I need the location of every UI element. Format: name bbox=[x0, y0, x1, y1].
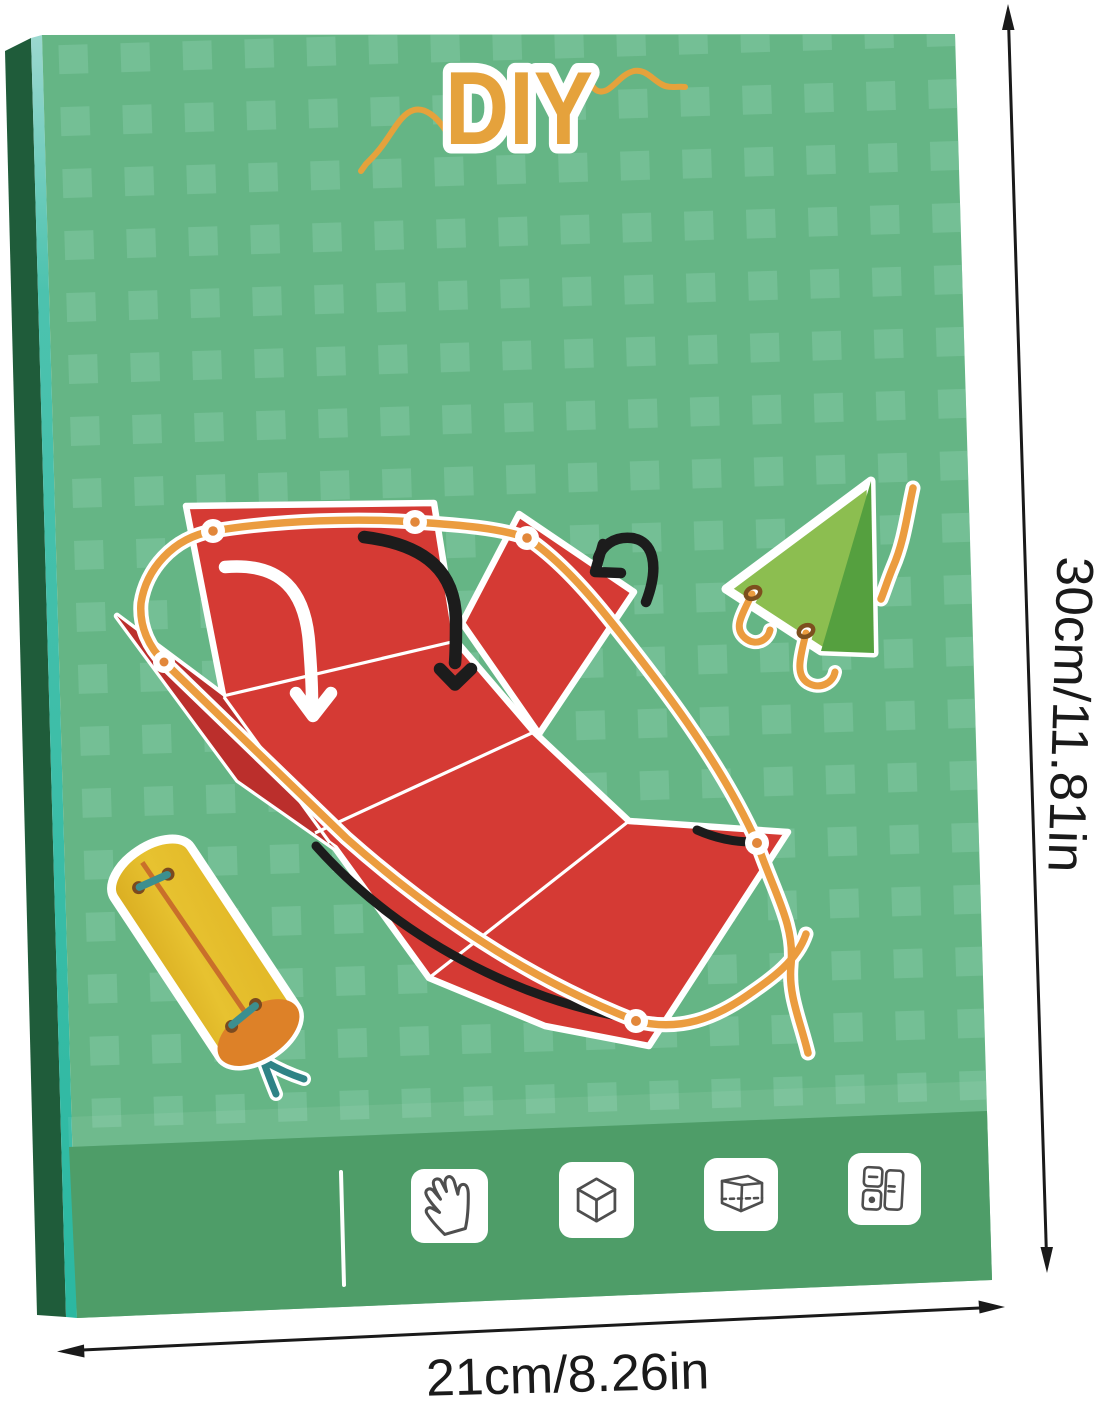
svg-text:DIY: DIY bbox=[445, 51, 593, 167]
svg-text:30cm/11.81in: 30cm/11.81in bbox=[1036, 556, 1103, 874]
svg-text:21cm/8.26in: 21cm/8.26in bbox=[425, 1342, 710, 1402]
